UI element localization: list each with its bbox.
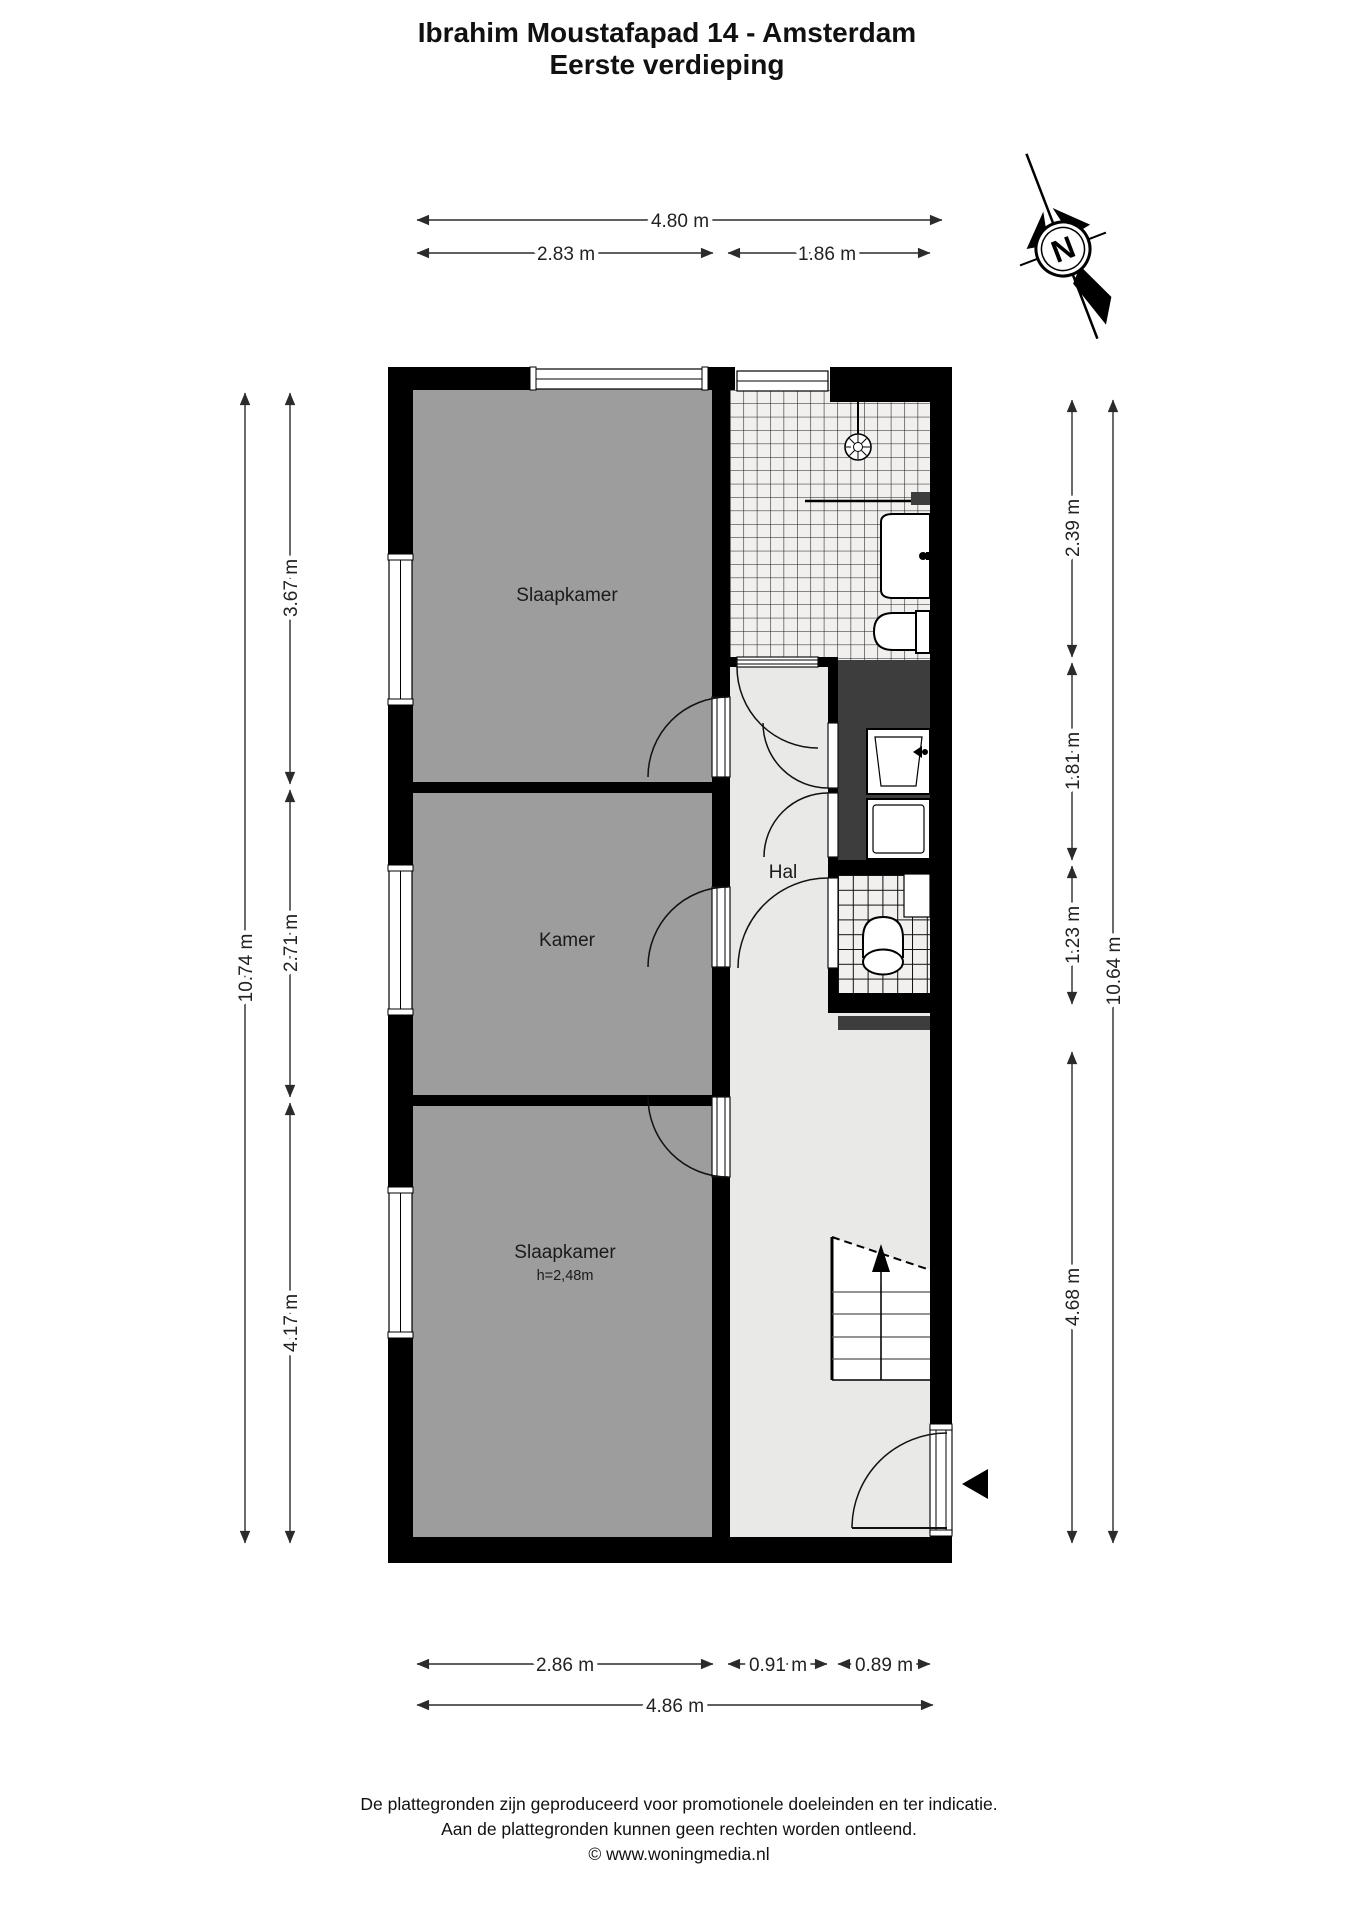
washing-machine bbox=[867, 729, 930, 794]
footer-disclaimer-2: Aan de plattegronden kunnen geen rechten… bbox=[441, 1819, 917, 1839]
wall-top-pier bbox=[705, 367, 735, 390]
wall-right-upper bbox=[930, 367, 952, 1427]
dim-left-seg-1: 3.67 m bbox=[281, 559, 302, 617]
footer-disclaimer-1: De plattegronden zijn geproduceerd voor … bbox=[360, 1794, 997, 1814]
label-ceiling-height: h=2,48m bbox=[537, 1268, 594, 1284]
wall-left-2 bbox=[388, 702, 413, 868]
shower-head-icon bbox=[845, 434, 871, 460]
footer-copyright: © www.woningmedia.nl bbox=[588, 1844, 769, 1864]
wall-divider-1 bbox=[413, 782, 712, 793]
page-title-floor: Eerste verdieping bbox=[550, 49, 785, 80]
dim-right-seg-1: 2.39 m bbox=[1063, 499, 1084, 557]
toilet-bathroom bbox=[874, 611, 930, 653]
wall-hall-east-3 bbox=[828, 857, 838, 878]
wall-bath-south-a bbox=[730, 657, 737, 667]
dim-bottom-left: 2.86 m bbox=[536, 1655, 594, 1676]
dim-right-seg-2: 1.81 m bbox=[1063, 732, 1084, 790]
dim-bottom-total: 4.86 m bbox=[646, 1696, 704, 1717]
wall-bottom bbox=[388, 1537, 952, 1563]
wall-hall-west-4 bbox=[712, 1177, 730, 1537]
closet-appliances bbox=[867, 729, 930, 859]
wall-hall-west-3 bbox=[712, 967, 730, 1097]
dim-left-seg-3: 4.17 m bbox=[281, 1294, 302, 1352]
floorplan-page: Ibrahim Moustafapad 14 - Amsterdam Eerst… bbox=[0, 0, 1358, 1920]
wall-left-1 bbox=[388, 367, 413, 557]
dim-top-total: 4.80 m bbox=[651, 211, 709, 232]
dim-bottom-right: 0.89 m bbox=[855, 1655, 913, 1676]
wall-divider-2 bbox=[413, 1095, 712, 1106]
wall-closet-wc-divider bbox=[838, 860, 930, 875]
wall-hall-east-2 bbox=[828, 788, 838, 793]
bathroom-shelf bbox=[911, 492, 930, 505]
dim-left-total: 10.74 m bbox=[236, 934, 257, 1003]
dim-top-left: 2.83 m bbox=[537, 244, 595, 265]
wall-hall-west-2 bbox=[712, 777, 730, 887]
compass-rose: N bbox=[984, 137, 1141, 355]
dim-bottom-mid: 0.91 m bbox=[749, 1655, 807, 1676]
label-kamer: Kamer bbox=[539, 930, 596, 951]
entrance-arrow-icon bbox=[962, 1469, 988, 1499]
wc-shelf bbox=[904, 874, 930, 917]
dim-right-seg-3: 1.23 m bbox=[1063, 906, 1084, 964]
label-hall: Hal bbox=[769, 862, 798, 883]
label-bedroom-top: Slaapkamer bbox=[516, 585, 618, 606]
dim-left-seg-2: 2.71 m bbox=[281, 914, 302, 972]
dim-right-seg-4: 4.68 m bbox=[1063, 1268, 1084, 1326]
wall-left-4 bbox=[388, 1335, 413, 1563]
rooms-fill bbox=[400, 378, 721, 1540]
wall-hall-west-1 bbox=[712, 388, 730, 697]
dim-top-right: 1.86 m bbox=[798, 244, 856, 265]
dim-right-total: 10.64 m bbox=[1104, 937, 1125, 1006]
toilet-wc bbox=[863, 917, 903, 975]
washbasin bbox=[881, 514, 932, 598]
label-bedroom-bottom: Slaapkamer bbox=[514, 1242, 616, 1263]
wall-left-3 bbox=[388, 1012, 413, 1190]
page-title-address: Ibrahim Moustafapad 14 - Amsterdam bbox=[418, 17, 916, 48]
hall-fill bbox=[721, 650, 838, 1540]
wall-wc-south bbox=[828, 993, 930, 1013]
appliance bbox=[867, 799, 930, 859]
radiator bbox=[838, 1016, 930, 1030]
wall-hall-east-1 bbox=[828, 657, 838, 723]
